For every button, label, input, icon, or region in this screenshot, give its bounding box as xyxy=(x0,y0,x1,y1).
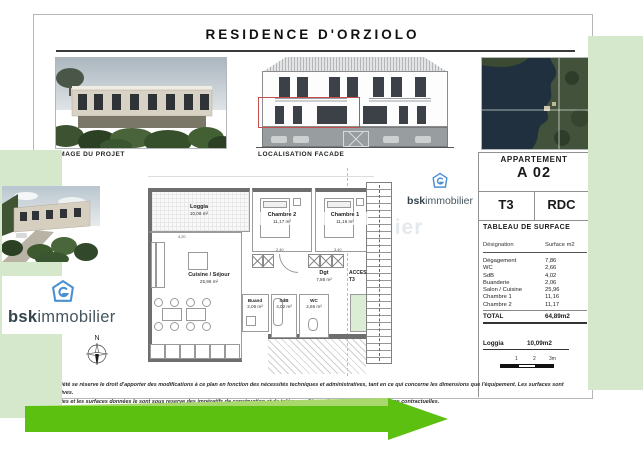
scale-tick-2: 2 xyxy=(533,356,536,362)
facade-garage-level xyxy=(262,127,448,147)
facade-window xyxy=(279,77,290,97)
facade-roof xyxy=(264,57,446,71)
closet-icon xyxy=(320,254,332,268)
loggia-row: Loggia 10,09m2 xyxy=(483,340,569,347)
scale-bar: 1 2 3m xyxy=(500,356,562,368)
aerial-map-image xyxy=(481,57,590,150)
bed-pillow xyxy=(327,201,351,208)
apartment-floor: RDC xyxy=(534,197,589,212)
label-acces: ACCES T3 xyxy=(349,270,383,283)
label-wc: WC 2,66 m² xyxy=(299,298,329,310)
coffee-table xyxy=(188,252,208,270)
green-arrow-graphic xyxy=(0,392,643,455)
dimension-text: 2,40 xyxy=(276,247,284,252)
chair-icon xyxy=(186,298,195,307)
aerial-map-graphic xyxy=(482,58,589,149)
dimension-line xyxy=(148,176,374,177)
label-buanderie: Buand 2,06 m² xyxy=(238,298,272,310)
surface-table-header: Désignation Surface m2 xyxy=(483,242,587,248)
surface-table-title: TABLEAU DE SURFACE xyxy=(483,224,570,231)
scale-tick-3: 3m xyxy=(549,356,556,362)
facade-label: LOCALISATION FACADE xyxy=(258,151,344,158)
loggia-value: 10,09m2 xyxy=(527,340,569,347)
chair-icon xyxy=(202,298,211,307)
compass-icon: N xyxy=(82,332,112,368)
apartment-highlight-box xyxy=(258,97,360,128)
sofa-seat xyxy=(156,242,165,288)
facade-railing xyxy=(369,98,431,103)
dimension-text: 3,40 xyxy=(334,247,342,252)
floor-plan: bskimmobilier xyxy=(138,168,400,380)
brand-wordmark: bskimmobilier xyxy=(8,308,116,327)
label-chambre2: Chambre 2 11,17 m² xyxy=(259,212,305,225)
total-value: 64,89m2 xyxy=(545,313,587,320)
secondary-render-image xyxy=(2,186,100,262)
table-row: Dégagement7,86 xyxy=(483,258,587,265)
page-canvas: RESIDENCE D'ORZIOLO xyxy=(0,0,643,455)
chair-icon xyxy=(202,322,211,331)
closet-icon xyxy=(263,254,274,268)
scale-segment xyxy=(536,364,554,368)
label-cuisine: Cuisine / Séjour 25,96 m² xyxy=(176,272,242,285)
loggia-label: Loggia xyxy=(483,340,527,347)
car-icon xyxy=(293,136,309,143)
loggia-rule xyxy=(483,349,569,350)
label-degagement: Dgt 7,86 m² xyxy=(308,270,340,283)
facade-window xyxy=(363,106,387,124)
closet-icon xyxy=(332,254,344,268)
dimension-text: 4,20 xyxy=(178,234,186,239)
surface-table-rows: Dégagement7,86 WC2,66 SdB4,02 Buanderie2… xyxy=(483,258,587,309)
bsk-house-icon xyxy=(50,279,76,305)
project-render-graphic xyxy=(56,58,226,148)
closet-icon xyxy=(252,254,263,268)
kitchen-unit xyxy=(165,344,180,359)
brand-logo-large: bskimmobilier xyxy=(2,276,148,334)
facade-window xyxy=(417,106,426,124)
label-chambre1: Chambre 1 11,16 m² xyxy=(322,212,368,225)
chair-icon xyxy=(154,298,163,307)
facade-window xyxy=(415,77,426,97)
total-rule-bottom xyxy=(483,322,587,324)
closet-icon xyxy=(308,254,320,268)
scale-ticks: 1 2 3m xyxy=(500,356,562,363)
facade-window xyxy=(399,106,408,124)
total-row: TOTAL 64,89m2 xyxy=(483,313,587,320)
table-row: Chambre 111,16 xyxy=(483,294,587,301)
project-render-image xyxy=(55,57,227,149)
exterior-hatch xyxy=(268,338,366,374)
chair-icon xyxy=(170,322,179,331)
compass: N xyxy=(82,332,112,373)
nightstand xyxy=(356,198,364,206)
scale-bar-segments xyxy=(500,364,562,368)
table-row: WC2,66 xyxy=(483,265,587,272)
facade-window xyxy=(297,77,308,97)
garage-door-icon xyxy=(343,131,369,147)
scale-segment xyxy=(500,364,518,368)
car-icon xyxy=(415,136,431,143)
kitchen-unit xyxy=(180,344,195,359)
facade-window xyxy=(347,77,358,97)
facade-window xyxy=(329,77,340,97)
project-image-label: IMAGE DU PROJET xyxy=(57,151,125,158)
secondary-render-graphic xyxy=(2,186,100,262)
table-header-rule xyxy=(483,252,587,253)
scale-segment xyxy=(518,364,536,368)
page-title: RESIDENCE D'ORZIOLO xyxy=(33,27,592,42)
apartment-header: APPARTEMENT xyxy=(479,155,589,164)
dining-table xyxy=(186,308,206,321)
panel-cell-divider xyxy=(534,191,535,220)
green-arrow-banner xyxy=(0,392,643,455)
bed-pillow xyxy=(263,201,287,208)
kitchen-unit xyxy=(195,344,210,359)
table-row: Chambre 211,17 xyxy=(483,302,587,309)
bsk-house-icon xyxy=(431,172,449,190)
ground-line xyxy=(256,147,454,148)
apartment-type: T3 xyxy=(478,197,534,212)
brand-wordmark: bskimmobilier xyxy=(398,195,482,207)
label-sdb: SdB 4,02 m² xyxy=(270,298,298,310)
chair-icon xyxy=(186,322,195,331)
panel-line xyxy=(478,152,589,153)
apartment-code: A 02 xyxy=(479,165,589,181)
facade-elevation xyxy=(256,57,456,149)
table-row: Salon / Cuisine25,96 xyxy=(483,287,587,294)
kitchen-counter xyxy=(150,344,240,359)
brand-logo-small: bskimmobilier xyxy=(398,172,482,207)
scale-tick-1: 1 xyxy=(515,356,518,362)
toilet xyxy=(308,318,318,331)
col-designation: Désignation xyxy=(483,242,545,248)
total-label: TOTAL xyxy=(483,313,545,320)
chair-icon xyxy=(154,322,163,331)
chair-icon xyxy=(170,298,179,307)
title-divider xyxy=(56,50,575,52)
car-icon xyxy=(271,136,287,143)
kitchen-unit xyxy=(150,344,165,359)
facade-window xyxy=(373,77,384,97)
car-icon xyxy=(383,136,399,143)
green-right-panel xyxy=(588,36,643,390)
label-loggia: Loggia 10,09 m² xyxy=(164,204,234,217)
nightstand xyxy=(293,198,301,206)
table-row: SdB4,02 xyxy=(483,273,587,280)
panel-line xyxy=(478,220,589,221)
washing-machine xyxy=(246,316,256,326)
kitchen-unit xyxy=(225,344,240,359)
kitchen-unit xyxy=(210,344,225,359)
facade-window xyxy=(391,77,402,97)
table-row: Buanderie2,06 xyxy=(483,280,587,287)
compass-north-label: N xyxy=(94,335,99,342)
dining-table xyxy=(162,308,182,321)
col-surface: Surface m2 xyxy=(545,242,587,248)
door-swing-icon xyxy=(279,254,298,273)
total-rule-top xyxy=(483,310,587,311)
